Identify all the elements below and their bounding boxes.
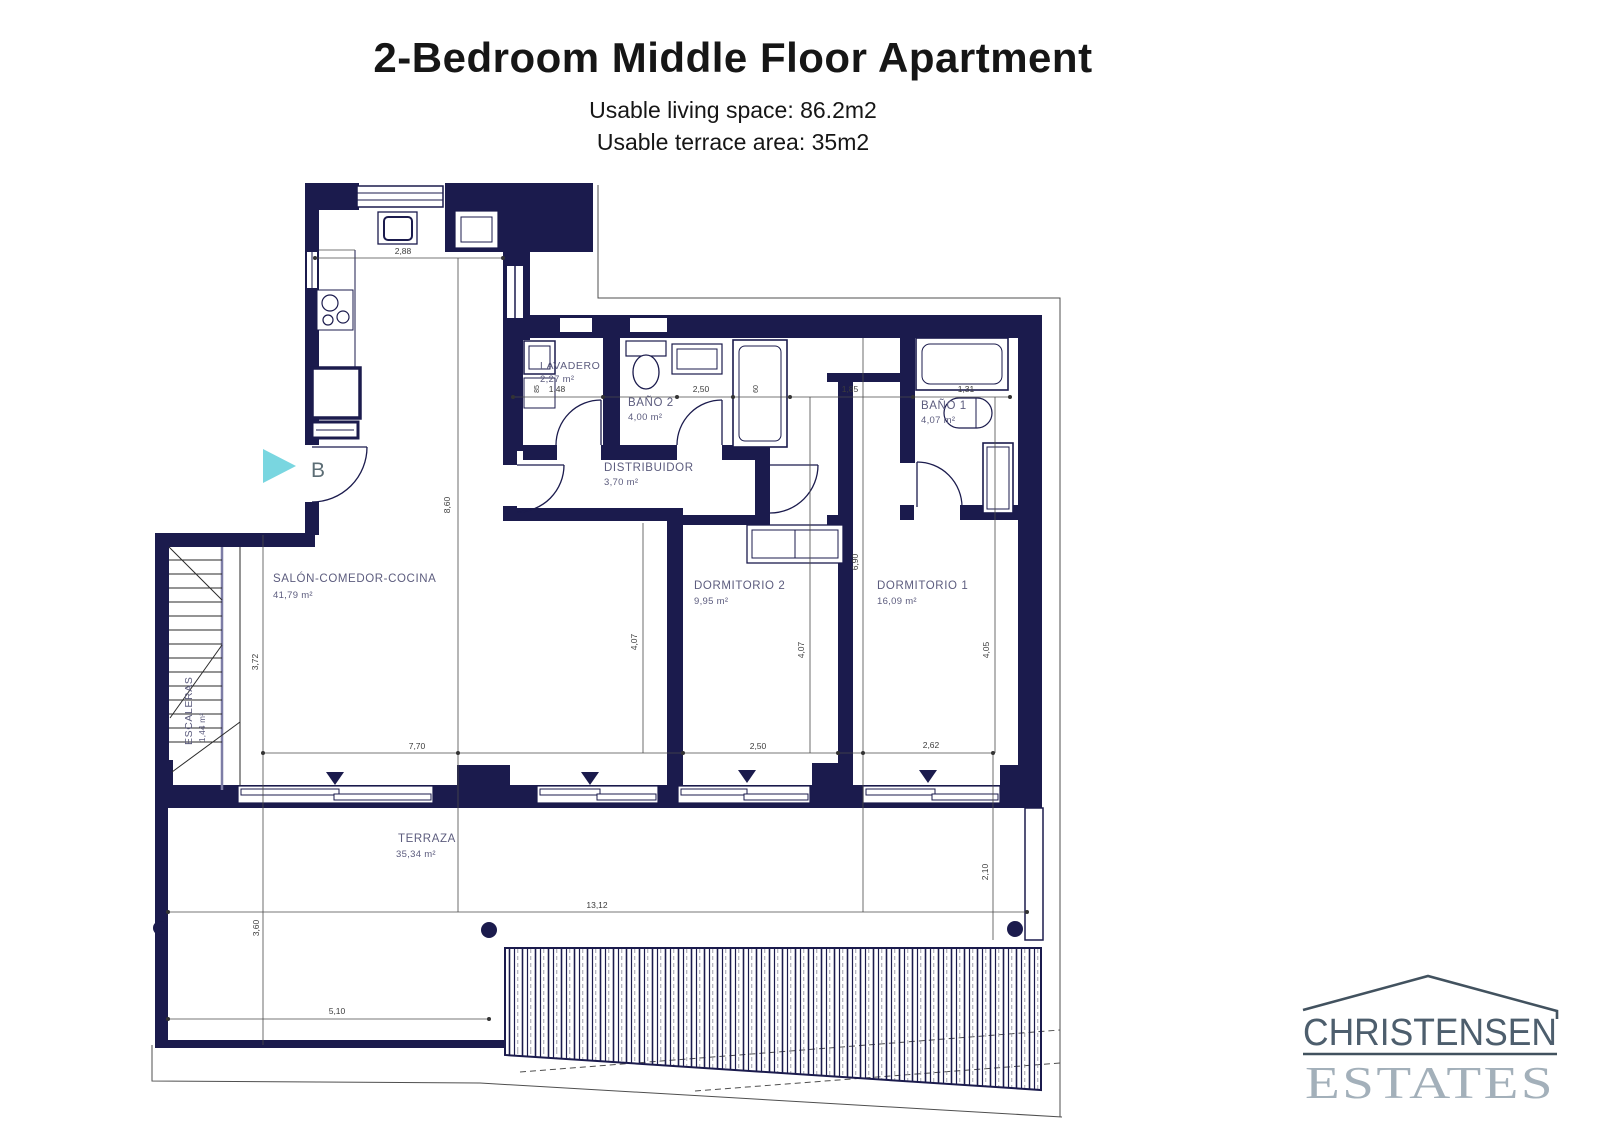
column: [153, 921, 167, 935]
dim-860: 8,60: [442, 496, 452, 513]
room-label-bano1: BAÑO 1: [921, 399, 967, 412]
floor-plan: 2,88 1,48 2,50 1,85 1,31 85 60 8,60 6,90…: [0, 0, 1600, 1131]
dim-85: 85: [534, 385, 541, 393]
louvre-slats: [505, 948, 1041, 1090]
room-area-terraza: 35,34 m²: [396, 849, 436, 860]
dim-405: 4,05: [981, 641, 991, 658]
logo-line2: ESTATES: [1305, 1057, 1555, 1108]
walls: [155, 183, 1042, 1048]
dim-131: 1,31: [958, 384, 975, 394]
stairs: [169, 547, 240, 790]
dim-288: 2,88: [395, 246, 412, 256]
terrace-windows: [238, 770, 1000, 803]
room-label-bano2: BAÑO 2: [628, 396, 674, 409]
room-area-dormitorio2: 9,95 m²: [694, 596, 728, 607]
room-label-dormitorio1: DORMITORIO 1: [877, 580, 968, 592]
room-area-escaleras: 1,44 m²: [198, 713, 207, 742]
logo-line1: CHRISTENSEN: [1303, 1012, 1557, 1054]
page: 2-Bedroom Middle Floor Apartment Usable …: [0, 0, 1600, 1131]
dim-1312: 13,12: [586, 900, 608, 910]
entrance-marker: B: [263, 449, 325, 483]
room-area-bano1: 4,07 m²: [921, 415, 955, 426]
room-area-salon: 41,79 m²: [273, 590, 313, 601]
dim-262: 2,62: [923, 740, 940, 750]
room-label-salon: SALÓN-COMEDOR-COCINA: [273, 572, 436, 585]
dim-690: 6,90: [850, 553, 860, 570]
dim-407-right: 4,07: [796, 641, 806, 658]
dim-148: 1,48: [549, 384, 566, 394]
room-area-lavadero: 2,27 m²: [540, 374, 574, 385]
dim-210: 2,10: [980, 863, 990, 880]
dim-770: 7,70: [409, 741, 426, 751]
dim-185: 1,85: [842, 384, 859, 394]
dim-250-top: 2,50: [693, 384, 710, 394]
column: [481, 922, 497, 938]
room-label-escaleras: ESCALERAS: [183, 677, 195, 745]
entrance-arrow-icon: [263, 449, 296, 483]
room-label-lavadero: LAVADERO: [540, 360, 600, 372]
room-area-distribuidor: 3,70 m²: [604, 477, 638, 488]
room-area-bano2: 4,00 m²: [628, 412, 662, 423]
dim-372: 3,72: [250, 653, 260, 670]
column: [1007, 921, 1023, 937]
room-label-dormitorio2: DORMITORIO 2: [694, 580, 785, 592]
block-letter: B: [311, 459, 325, 482]
dim-407-left: 4,07: [629, 633, 639, 650]
dim-360: 3,60: [251, 919, 261, 936]
logo: CHRISTENSEN ESTATES: [1295, 966, 1565, 1111]
dimension-labels: 2,88 1,48 2,50 1,85 1,31 85 60 8,60 6,90…: [250, 246, 991, 1016]
room-area-dormitorio1: 16,09 m²: [877, 596, 917, 607]
room-label-distribuidor: DISTRIBUIDOR: [604, 462, 694, 474]
dim-60: 60: [753, 385, 760, 393]
dim-510: 5,10: [329, 1006, 346, 1016]
dim-250-bottom: 2,50: [750, 741, 767, 751]
room-label-terraza: TERRAZA: [398, 833, 456, 845]
